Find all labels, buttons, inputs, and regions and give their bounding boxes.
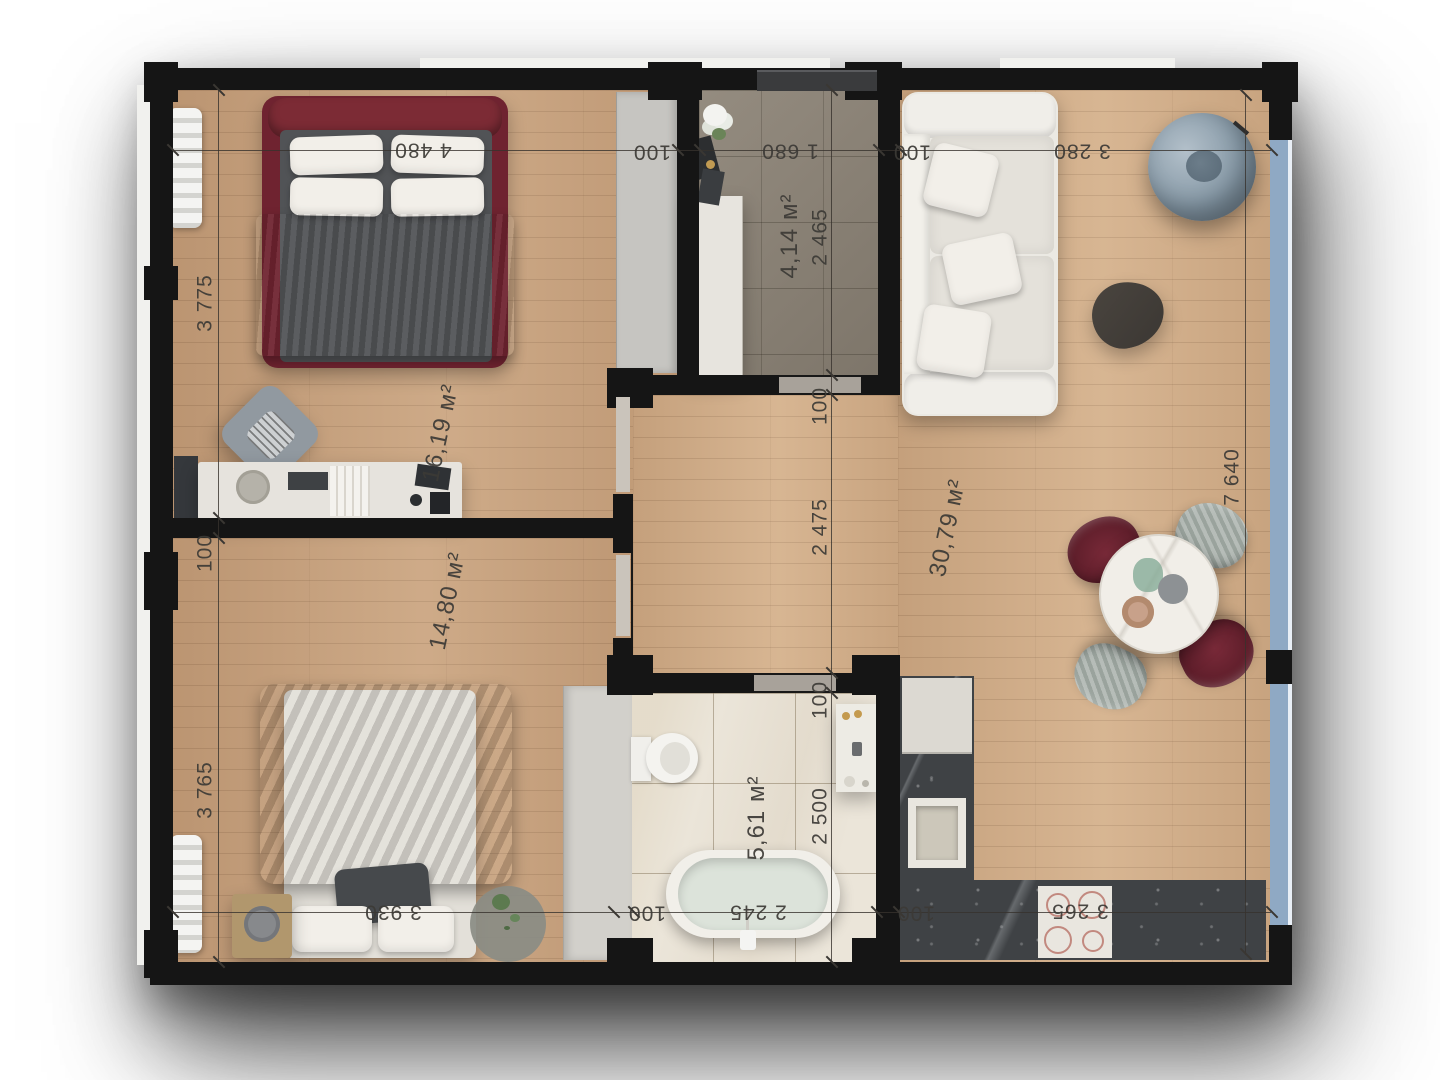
- wall-column: [1262, 62, 1298, 102]
- vanity-accessories: [842, 712, 850, 720]
- wall-bottom: [150, 962, 1292, 985]
- desk-mat: [288, 472, 328, 490]
- kitchen-sink-basin: [916, 806, 958, 860]
- wall-column: [607, 655, 653, 695]
- wall-column: [607, 368, 653, 408]
- top-window-band-2: [1000, 58, 1175, 68]
- sofa-armrest: [904, 372, 1056, 414]
- sofa-armrest: [904, 94, 1056, 138]
- dim-label-bedroom1-depth: 3 775: [195, 274, 216, 332]
- dim-label-wall: 100: [628, 903, 666, 924]
- top-window-band: [420, 58, 830, 68]
- floor-plan-canvas: 4 480 100 1 680 100 3 280 3 775 100 3 76…: [0, 0, 1440, 1080]
- front-door: [757, 70, 877, 91]
- desk-item: [410, 494, 422, 506]
- dim-label-living-width: 3 280: [1053, 141, 1111, 162]
- entry-flowers: [703, 104, 727, 126]
- bed1-blanket: [256, 214, 514, 356]
- dim-label-bedroom2-width: 3 930: [364, 902, 422, 923]
- wall-left: [150, 68, 173, 985]
- wall-top: [150, 68, 1292, 90]
- dim-label-entry-depth: 2 465: [810, 208, 831, 266]
- dim-label-living-depth: 7 640: [1222, 448, 1243, 506]
- wall-column: [144, 930, 178, 978]
- bed1-pillow: [391, 177, 485, 217]
- dim-label-entry-width: 1 680: [761, 141, 819, 162]
- dim-line-left: [218, 90, 219, 963]
- left-window-band: [137, 85, 150, 965]
- dim-label-hall-depth: 2 475: [810, 498, 831, 556]
- bathtub-faucet: [740, 930, 756, 950]
- table-plate: [1122, 596, 1154, 628]
- beanbag-dimple: [1186, 150, 1222, 182]
- dim-label-wall: 100: [810, 387, 831, 425]
- desk-item: [430, 492, 450, 514]
- dim-label-bedroom1-width: 4 480: [394, 140, 452, 161]
- wall-column: [852, 655, 900, 695]
- entry-plant-leaf: [712, 128, 726, 140]
- wall-column: [144, 62, 178, 102]
- vanity-soap: [844, 776, 855, 787]
- bed1-pillow: [290, 177, 384, 217]
- dim-label-bedroom2-depth: 3 765: [195, 761, 216, 819]
- wardrobe-bedroom2: [563, 686, 632, 960]
- wall-column: [144, 552, 178, 610]
- area-label-bathroom: 5,61 м²: [745, 776, 769, 861]
- radiator: [168, 108, 202, 228]
- wardrobe-bedroom1: [616, 92, 678, 373]
- book-stack: [330, 466, 370, 516]
- dim-label-kitchen-width: 3 265: [1051, 901, 1109, 922]
- toilet-seat: [660, 742, 690, 775]
- desk-tray: [236, 470, 270, 504]
- coat-hook-detail: [706, 160, 715, 169]
- dim-label-wall: 100: [893, 142, 931, 163]
- hall-floor: [633, 395, 898, 673]
- cooktop-burner: [1082, 930, 1104, 952]
- window-right: [1270, 120, 1292, 945]
- dim-label-wall: 100: [633, 142, 671, 163]
- dim-label-wall: 100: [897, 903, 935, 924]
- wall-under-entry-2: [861, 375, 900, 395]
- area-label-entry: 4,14 м²: [778, 194, 802, 279]
- dim-label-wall: 100: [810, 681, 831, 719]
- wall-column: [607, 938, 653, 978]
- refrigerator: [902, 678, 972, 754]
- vanity-faucet: [852, 742, 862, 756]
- dim-line-right: [1245, 95, 1246, 955]
- potted-plant: [492, 894, 510, 910]
- wall-between-bedrooms: [172, 518, 633, 538]
- dim-label-bathroom-depth: 2 500: [810, 787, 831, 845]
- door-bedroom1: [616, 397, 630, 492]
- sofa-pillow: [915, 303, 992, 379]
- wall-column: [852, 938, 900, 978]
- wall-entry-living: [878, 90, 900, 395]
- bed2-blanket: [260, 684, 512, 884]
- cooktop-burner: [1044, 926, 1072, 954]
- dim-label-bathroom-width: 2 245: [729, 902, 787, 923]
- bed1-pillow: [289, 134, 383, 175]
- window-mullion: [1266, 650, 1292, 684]
- wall-column: [648, 62, 702, 100]
- table-bowl: [1158, 574, 1188, 604]
- dim-label-wall: 100: [195, 534, 216, 572]
- door-bedroom2: [616, 555, 630, 636]
- wall-column: [144, 266, 178, 300]
- wall-bedroom1-entry: [677, 90, 699, 395]
- side-cabinet: [174, 456, 198, 520]
- wall-right-bottom: [1269, 925, 1292, 985]
